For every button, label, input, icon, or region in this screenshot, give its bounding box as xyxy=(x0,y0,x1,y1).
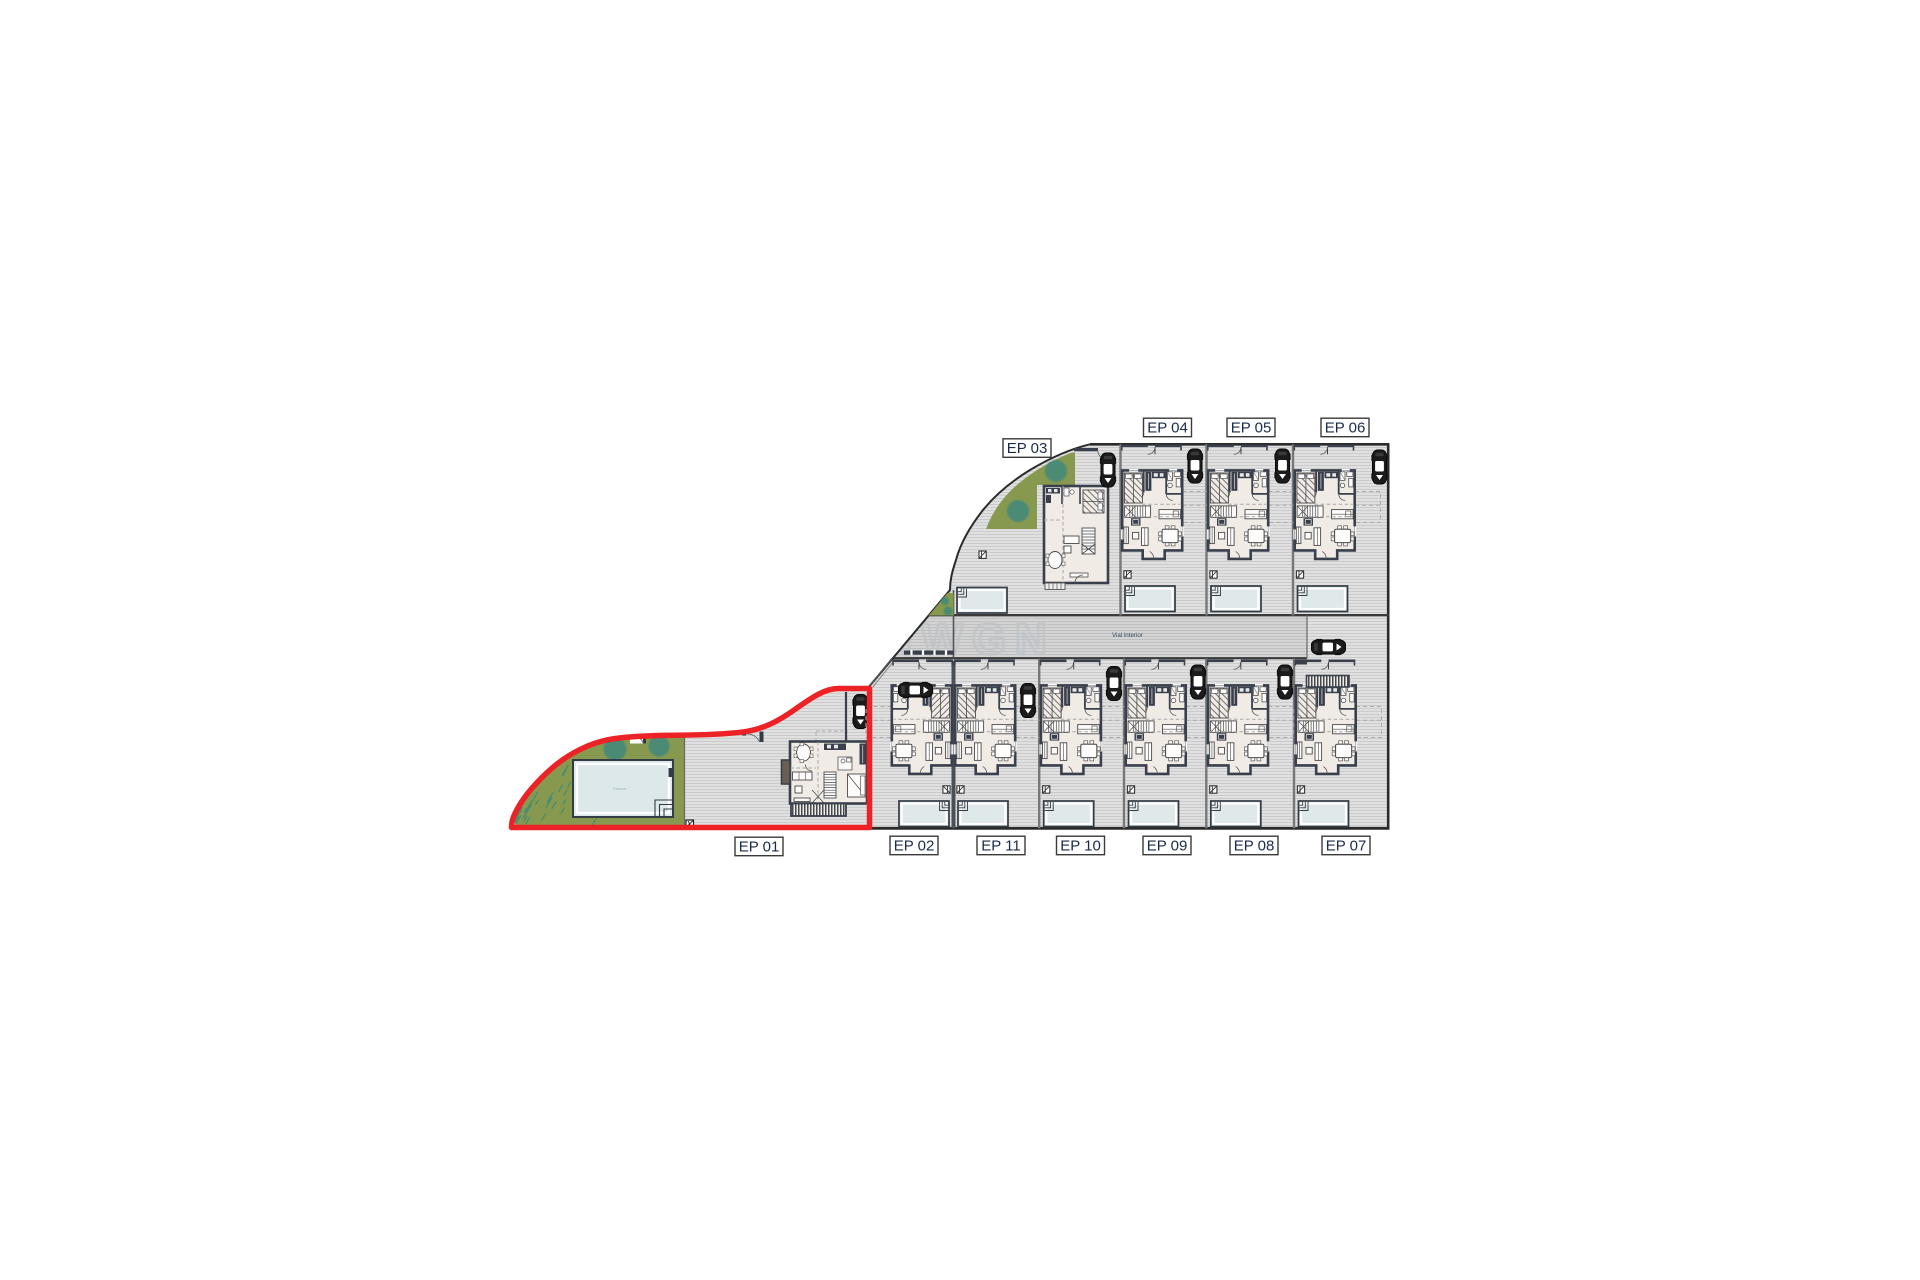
svg-text:EP 05: EP 05 xyxy=(1231,420,1272,437)
svg-text:EP 02: EP 02 xyxy=(894,838,935,855)
svg-text:EP 06: EP 06 xyxy=(1325,420,1366,437)
svg-text:EP 09: EP 09 xyxy=(1147,838,1188,855)
svg-text:EP 11: EP 11 xyxy=(981,838,1020,855)
svg-text:EP 07: EP 07 xyxy=(1326,838,1367,855)
svg-text:Vial interior: Vial interior xyxy=(1112,632,1143,639)
svg-text:EP 10: EP 10 xyxy=(1060,838,1101,855)
svg-text:EP 01: EP 01 xyxy=(739,839,780,856)
svg-text:EP 08: EP 08 xyxy=(1234,838,1275,855)
svg-text:Piscina: Piscina xyxy=(613,786,627,791)
svg-text:EP 03: EP 03 xyxy=(1007,440,1048,457)
svg-text:EP 04: EP 04 xyxy=(1147,420,1188,437)
